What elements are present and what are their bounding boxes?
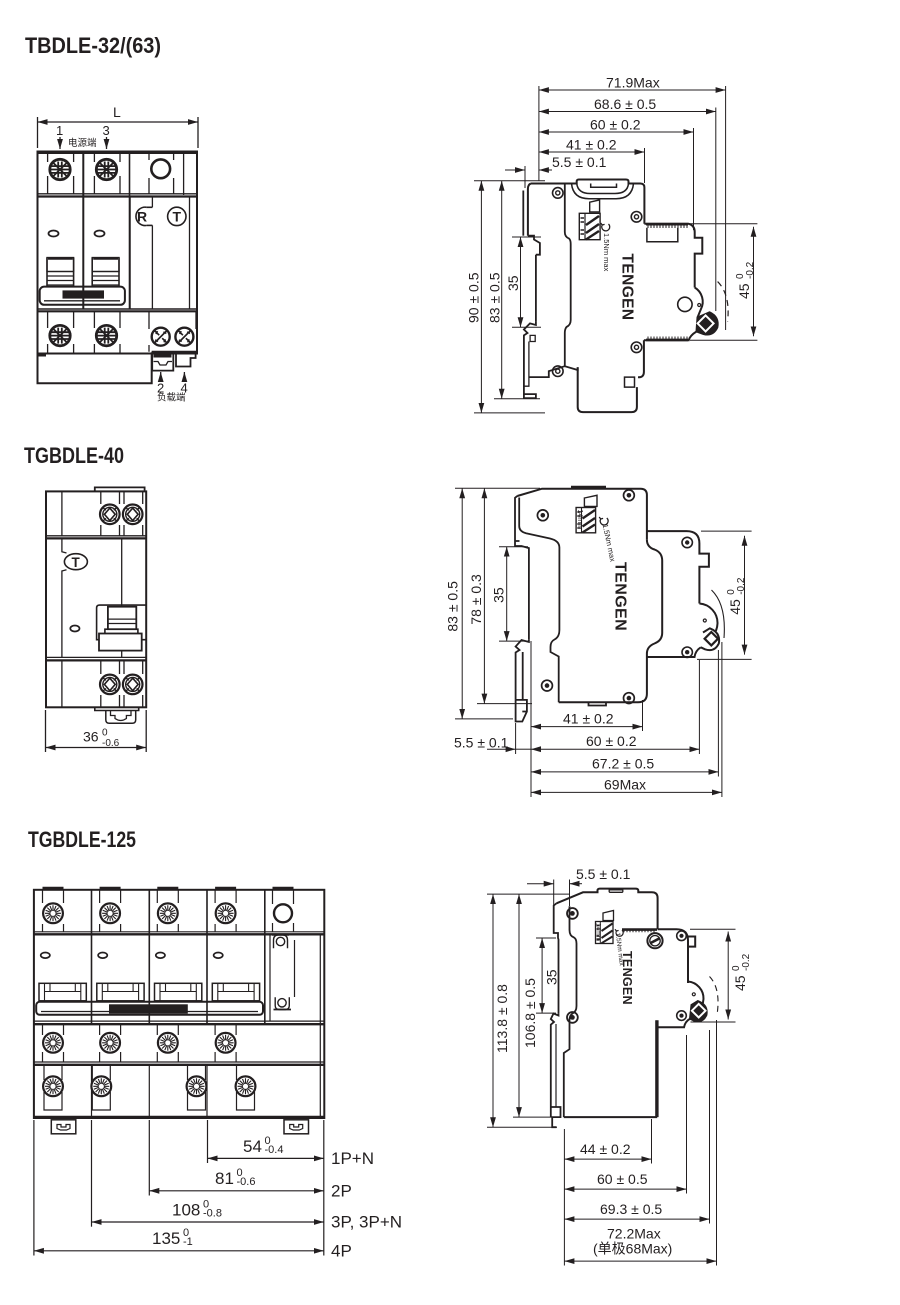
svg-text:108: 108 (172, 1201, 200, 1220)
svg-text:-1: -1 (183, 1236, 193, 1248)
svg-text:(单极68Max): (单极68Max) (593, 1241, 672, 1257)
svg-text:TGBDLE-40: TGBDLE-40 (24, 443, 124, 468)
svg-text:电源端: 电源端 (68, 137, 97, 149)
svg-text:69.3 ± 0.5: 69.3 ± 0.5 (600, 1201, 662, 1217)
svg-text:-0.4: -0.4 (265, 1144, 284, 1156)
svg-text:TENGEN: TENGEN (619, 254, 636, 321)
svg-text:78 ± 0.3: 78 ± 0.3 (468, 574, 484, 625)
svg-text:106.8 ± 0.5: 106.8 ± 0.5 (522, 978, 538, 1048)
svg-text:14mm: 14mm (595, 923, 602, 941)
svg-text:TENGEN: TENGEN (620, 951, 634, 1005)
svg-text:83 ± 0.5: 83 ± 0.5 (487, 272, 503, 323)
svg-text:-0.6: -0.6 (237, 1176, 256, 1188)
svg-text:TGBDLE-125: TGBDLE-125 (28, 827, 136, 852)
svg-text:69Max: 69Max (604, 777, 646, 793)
svg-text:5.5 ± 0.1: 5.5 ± 0.1 (454, 735, 509, 751)
svg-text:5.5 ± 0.1: 5.5 ± 0.1 (552, 154, 607, 170)
svg-text:TBDLE-32/(63): TBDLE-32/(63) (25, 33, 161, 58)
svg-text:T: T (72, 555, 81, 570)
svg-text:45: 45 (736, 283, 752, 299)
svg-text:36: 36 (83, 729, 99, 745)
svg-text:5.5 ± 0.1: 5.5 ± 0.1 (576, 866, 631, 882)
svg-text:-0.8: -0.8 (203, 1208, 222, 1220)
svg-text:45: 45 (732, 975, 748, 991)
svg-text:35: 35 (544, 969, 560, 985)
svg-text:1P+N: 1P+N (331, 1149, 374, 1168)
svg-text:35: 35 (505, 275, 521, 291)
svg-text:90 ± 0.5: 90 ± 0.5 (466, 272, 482, 323)
svg-text:R: R (137, 209, 147, 225)
svg-text:60 ± 0.5: 60 ± 0.5 (597, 1171, 648, 1187)
svg-text:68.6 ± 0.5: 68.6 ± 0.5 (594, 96, 656, 112)
svg-text:135: 135 (152, 1229, 180, 1248)
svg-text:54: 54 (243, 1137, 262, 1156)
svg-text:负载端: 负载端 (157, 392, 186, 404)
svg-text:83 ± 0.5: 83 ± 0.5 (445, 581, 461, 632)
svg-text:113.8 ± 0.8: 113.8 ± 0.8 (494, 984, 510, 1053)
svg-text:81: 81 (215, 1169, 234, 1188)
svg-text:0: 0 (102, 728, 108, 739)
svg-text:TENGEN: TENGEN (612, 562, 629, 631)
svg-text:35: 35 (491, 587, 507, 603)
svg-text:44 ± 0.2: 44 ± 0.2 (580, 1141, 631, 1157)
svg-text:41 ± 0.2: 41 ± 0.2 (566, 137, 617, 153)
svg-text:60 ± 0.2: 60 ± 0.2 (590, 117, 641, 133)
svg-text:72.2Max: 72.2Max (607, 1226, 661, 1242)
svg-text:1.5Nm max: 1.5Nm max (601, 523, 618, 563)
svg-text:-0.2: -0.2 (745, 261, 756, 279)
svg-text:1.5Nm max: 1.5Nm max (602, 233, 611, 272)
svg-text:41 ± 0.2: 41 ± 0.2 (563, 711, 614, 727)
svg-text:14mm: 14mm (576, 510, 583, 530)
svg-text:1: 1 (56, 123, 63, 138)
svg-text:2P: 2P (331, 1182, 352, 1201)
svg-text:67.2 ± 0.5: 67.2 ± 0.5 (592, 756, 654, 772)
svg-text:-0.2: -0.2 (741, 953, 752, 971)
svg-text:T: T (173, 209, 182, 225)
svg-text:-0.2: -0.2 (736, 577, 747, 595)
svg-text:L: L (113, 104, 121, 120)
svg-text:4P: 4P (331, 1242, 352, 1261)
svg-text:3: 3 (103, 123, 110, 138)
svg-text:3P, 3P+N: 3P, 3P+N (331, 1213, 402, 1232)
svg-text:60 ± 0.2: 60 ± 0.2 (586, 733, 637, 749)
svg-text:45: 45 (727, 599, 743, 615)
svg-text:71.9Max: 71.9Max (606, 75, 660, 91)
